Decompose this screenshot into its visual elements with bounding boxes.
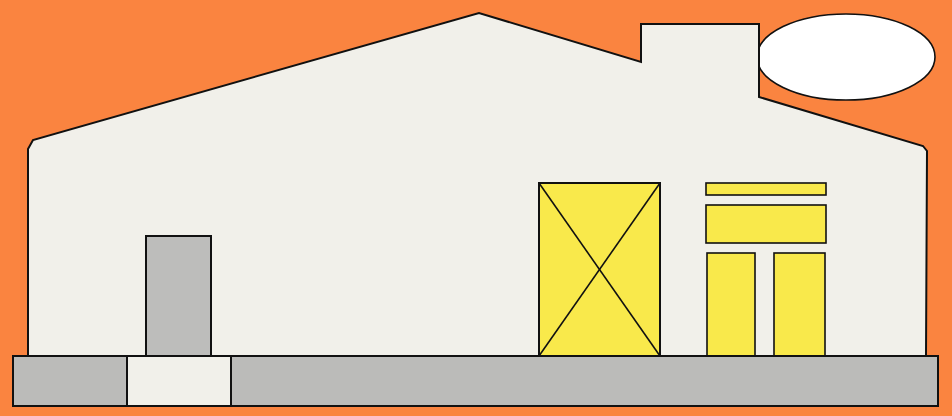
doorstep-segment bbox=[127, 356, 231, 406]
house-illustration bbox=[0, 0, 952, 416]
smoke-cloud bbox=[757, 14, 935, 100]
double-door-left-panel bbox=[707, 253, 755, 356]
front-door bbox=[146, 236, 211, 356]
crossed-window bbox=[539, 183, 660, 356]
transom-panel bbox=[706, 205, 826, 243]
transom-top-bar bbox=[706, 183, 826, 195]
double-door-right-panel bbox=[774, 253, 825, 356]
